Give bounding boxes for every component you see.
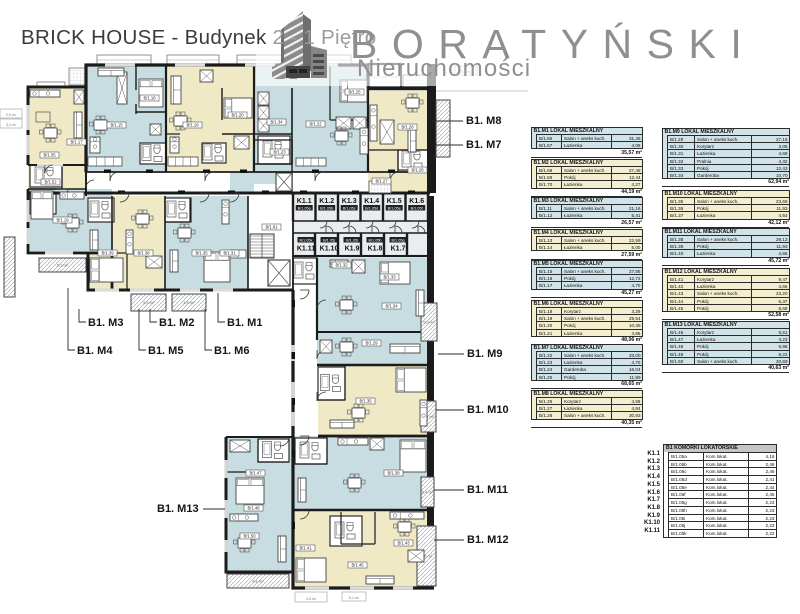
svg-text:B/1.05h: B/1.05h [368, 238, 381, 242]
svg-text:B/1.31: B/1.31 [223, 251, 236, 256]
svg-text:K1.4: K1.4 [364, 198, 379, 205]
svg-text:B/1.22: B/1.22 [309, 122, 322, 127]
svg-text:B/1.05e: B/1.05e [388, 206, 401, 210]
svg-text:2,9 m²: 2,9 m² [6, 113, 17, 117]
svg-text:B/1.45: B/1.45 [351, 563, 364, 568]
svg-text:B/1.20: B/1.20 [231, 113, 244, 118]
svg-text:B/1.39: B/1.39 [101, 251, 114, 256]
svg-text:4,5 m²: 4,5 m² [183, 300, 195, 305]
svg-text:K1.7: K1.7 [391, 246, 406, 253]
svg-text:B/1.05d: B/1.05d [365, 206, 378, 210]
svg-text:B/1.15: B/1.15 [110, 123, 123, 128]
svg-text:B/1.34: B/1.34 [270, 120, 283, 125]
svg-text:B/1.41: B/1.41 [299, 546, 312, 551]
svg-text:B/1.38: B/1.38 [137, 251, 150, 256]
svg-text:B/1.23: B/1.23 [273, 150, 286, 155]
svg-text:6,1 m²: 6,1 m² [349, 596, 360, 600]
svg-text:B/1.43: B/1.43 [397, 541, 410, 546]
svg-text:K1.3: K1.3 [342, 198, 357, 205]
svg-text:B/1.05a: B/1.05a [298, 206, 312, 210]
svg-text:B/1.05i: B/1.05i [346, 238, 358, 242]
svg-text:B/1.35: B/1.35 [195, 251, 208, 256]
svg-text:B/1.33: B/1.33 [383, 275, 396, 280]
svg-text:B/1.50: B/1.50 [243, 534, 256, 539]
svg-text:K1.1: K1.1 [297, 198, 312, 205]
svg-text:K1.10: K1.10 [320, 246, 339, 253]
svg-text:4,5 m²: 4,5 m² [306, 597, 317, 601]
svg-text:B/1.28: B/1.28 [401, 125, 414, 130]
svg-text:B/1.05f: B/1.05f [411, 206, 424, 210]
svg-text:B/1.29: B/1.29 [365, 341, 378, 346]
svg-text:K1.11: K1.11 [297, 246, 315, 253]
svg-text:B/1.38: B/1.38 [387, 471, 400, 476]
svg-text:B/1.26: B/1.26 [411, 168, 424, 173]
svg-text:K1.2: K1.2 [319, 198, 334, 205]
svg-text:K1.9: K1.9 [345, 246, 360, 253]
svg-text:B/1.19: B/1.19 [186, 123, 199, 128]
svg-text:B/1.19: B/1.19 [56, 218, 69, 223]
svg-text:B/1.35: B/1.35 [359, 399, 372, 404]
svg-text:6,3 m²: 6,3 m² [423, 320, 435, 325]
svg-text:B/1.47: B/1.47 [249, 471, 262, 476]
svg-text:B/1.61: B/1.61 [265, 225, 278, 230]
svg-text:B/1.52: B/1.52 [44, 180, 57, 185]
svg-text:4,1 m²: 4,1 m² [252, 579, 264, 584]
svg-text:5,4 m²: 5,4 m² [422, 490, 434, 495]
svg-text:K1.6: K1.6 [409, 198, 424, 205]
svg-text:K1.5: K1.5 [387, 198, 402, 205]
svg-text:B/1.16: B/1.16 [143, 96, 156, 101]
svg-text:B/1.05b: B/1.05b [320, 206, 333, 210]
svg-text:3,4 m²: 3,4 m² [6, 123, 17, 127]
svg-text:B/1.05c: B/1.05c [343, 206, 356, 210]
svg-text:B/1.05g: B/1.05g [391, 238, 404, 242]
svg-text:5,1 m²: 5,1 m² [57, 263, 69, 268]
svg-text:B/1.32: B/1.32 [335, 263, 348, 268]
svg-text:B/1.48: B/1.48 [247, 506, 260, 511]
svg-text:B/1.34: B/1.34 [385, 304, 398, 309]
svg-text:B/1.17: B/1.17 [70, 140, 83, 145]
svg-text:K1.8: K1.8 [368, 246, 383, 253]
svg-text:4,3 m²: 4,3 m² [143, 300, 155, 305]
svg-text:B/1.05: B/1.05 [43, 153, 56, 158]
svg-text:B/1.25: B/1.25 [348, 90, 361, 95]
svg-text:B/1.05j: B/1.05j [323, 238, 335, 242]
svg-text:B/1.05k: B/1.05k [300, 238, 313, 242]
svg-text:B/1.27: B/1.27 [375, 179, 388, 184]
